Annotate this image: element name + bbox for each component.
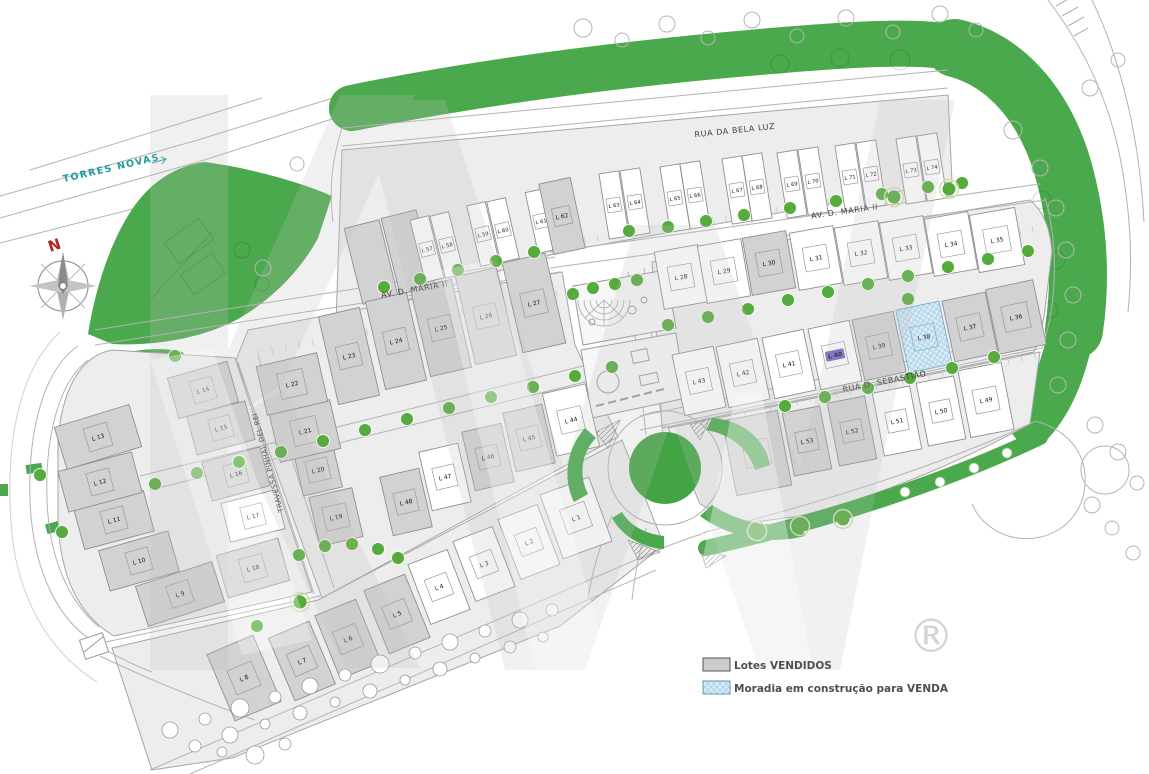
tree-outline-icon (290, 157, 304, 171)
shrub-outline-icon (279, 738, 291, 750)
tree-icon (1022, 245, 1035, 258)
tree-icon (988, 351, 1001, 364)
bush-icon (900, 487, 910, 497)
tree-icon (372, 543, 385, 556)
tree-outline-icon (574, 19, 592, 37)
tree-icon (401, 413, 414, 426)
shrub-outline-icon (162, 722, 178, 738)
legend-item-construction: Moradia em construção para VENDA (703, 681, 949, 695)
tree-outline-icon (1126, 546, 1140, 560)
tree-icon (943, 183, 956, 196)
shrub-outline-icon (246, 746, 264, 764)
compass-north-label: N (46, 235, 64, 256)
tree-outline-icon (1111, 53, 1125, 67)
tree-icon (784, 202, 797, 215)
shrub-outline-icon (479, 625, 491, 637)
shrub-outline-icon (442, 634, 458, 650)
tree-icon (359, 424, 372, 437)
compass-rose: N (29, 235, 97, 320)
shrub-outline-icon (293, 706, 307, 720)
tree-outline-icon (659, 16, 675, 32)
shrub-outline-icon (269, 691, 281, 703)
shrub-outline-icon (189, 740, 201, 752)
tree-outline-icon (744, 12, 760, 28)
tree-icon (34, 469, 47, 482)
tree-icon (956, 177, 969, 190)
lot-l-30[interactable]: L 30 (742, 231, 795, 296)
tree-icon (56, 526, 69, 539)
tree-icon (317, 435, 330, 448)
tree-icon (782, 294, 795, 307)
legend-item-sold: Lotes VENDIDOS (703, 658, 832, 672)
shrub-outline-icon (330, 697, 340, 707)
site-plan-svg: L 1L 2L 3L 4L 5L 6L 7L 8L 9L 10L 11L 12L… (0, 0, 1149, 774)
shrub-outline-icon (231, 699, 249, 717)
tree-icon (946, 362, 959, 375)
shrub-outline-icon (217, 747, 227, 757)
tree-icon (779, 400, 792, 413)
site-markers (79, 633, 108, 659)
legend-swatch-construction (703, 681, 730, 694)
tree-icon (392, 552, 405, 565)
bush-icon (1002, 448, 1012, 458)
shrub-outline-icon (400, 675, 410, 685)
shrub-outline-icon (199, 713, 211, 725)
tree-outline-icon (1105, 521, 1119, 535)
shrub-outline-icon (470, 653, 480, 663)
tree-icon (830, 195, 843, 208)
tree-icon (587, 282, 600, 295)
shrub-outline-icon (433, 662, 447, 676)
tree-icon (738, 209, 751, 222)
bush-icon (935, 477, 945, 487)
shrub-outline-icon (363, 684, 377, 698)
shrub-outline-icon (339, 669, 351, 681)
road-label-torres-novas: TORRES NOVAS (62, 152, 161, 185)
tree-icon (982, 253, 995, 266)
bush-icon (969, 463, 979, 473)
tree-icon (822, 286, 835, 299)
shrub-outline-icon (302, 678, 318, 694)
tree-outline-icon (1081, 446, 1129, 494)
tree-outline-icon (932, 6, 948, 22)
tree-icon (569, 370, 582, 383)
lot-l-31[interactable]: L 31 (789, 226, 842, 291)
legend-label-construction: Moradia em construção para VENDA (734, 683, 949, 695)
tree-outline-icon (1084, 497, 1100, 513)
shrub-outline-icon (222, 727, 238, 743)
tree-icon (567, 288, 580, 301)
legend-label-sold: Lotes VENDIDOS (734, 660, 832, 672)
tree-outline-icon (1087, 417, 1103, 433)
legend-swatch-sold (703, 658, 730, 671)
tree-icon (528, 246, 541, 259)
site-plan-page: L 1L 2L 3L 4L 5L 6L 7L 8L 9L 10L 11L 12L… (0, 0, 1149, 774)
tree-outline-icon (1110, 444, 1126, 460)
registered-trademark-symbol: ® (908, 609, 954, 663)
tree-outline-icon (1082, 80, 1098, 96)
lot-l-35[interactable]: L 35 (969, 207, 1024, 272)
tree-outline-icon (1130, 476, 1144, 490)
shrub-outline-icon (260, 719, 270, 729)
tree-icon (942, 261, 955, 274)
